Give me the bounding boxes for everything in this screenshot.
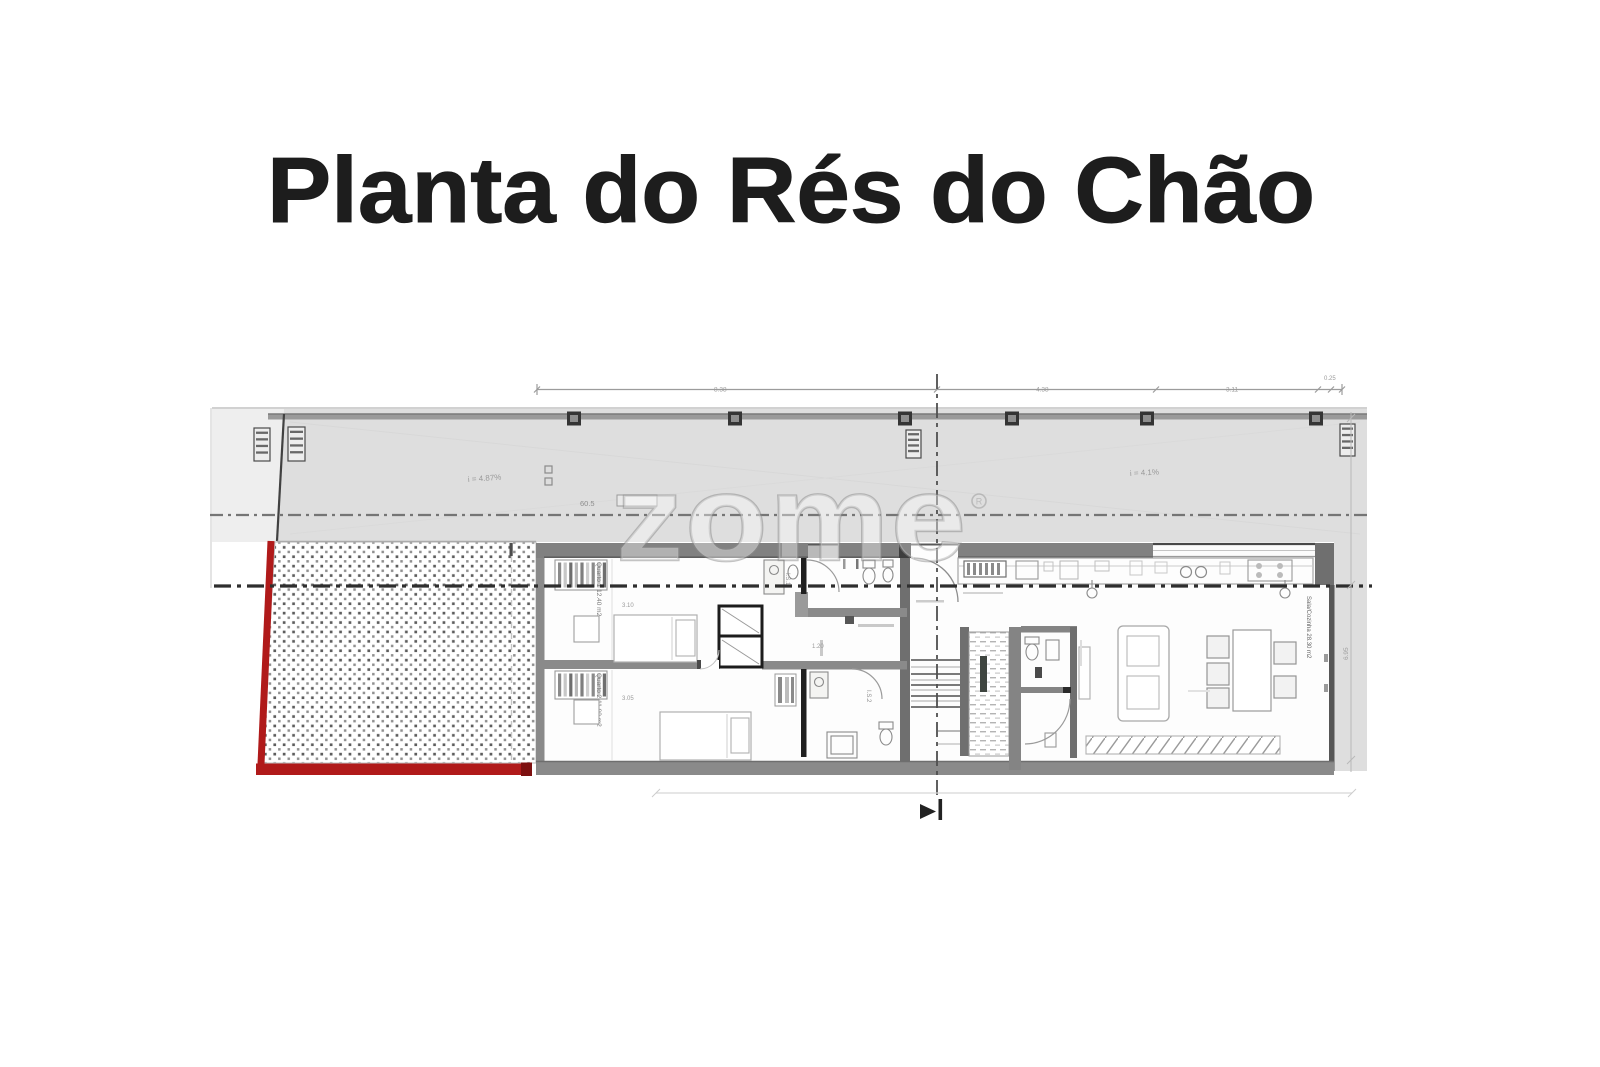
svg-text:Sala/Cozinha 28.30 m2: Sala/Cozinha 28.30 m2 (1305, 596, 1311, 659)
svg-text:3.11: 3.11 (1226, 387, 1239, 394)
svg-text:3.10: 3.10 (622, 603, 634, 609)
svg-text:R: R (976, 497, 983, 507)
svg-text:i = 4.1%: i = 4.1% (1130, 467, 1160, 478)
svg-text:60.5: 60.5 (580, 499, 595, 508)
svg-text:Planta do Rés do Chão: Planta do Rés do Chão (267, 138, 1315, 242)
svg-text:I.S.2: I.S.2 (865, 690, 871, 703)
svg-text:1.20: 1.20 (812, 644, 824, 650)
svg-text:6.95: 6.95 (1343, 647, 1350, 660)
svg-text:3.05: 3.05 (622, 696, 634, 702)
svg-text:0.25: 0.25 (1324, 376, 1336, 382)
svg-text:Quarto 1 12.40 m2: Quarto 1 12.40 m2 (595, 562, 602, 617)
svg-text:4.38: 4.38 (1036, 387, 1049, 394)
svg-text:8.38: 8.38 (714, 387, 727, 394)
svg-text:zome: zome (616, 450, 968, 586)
